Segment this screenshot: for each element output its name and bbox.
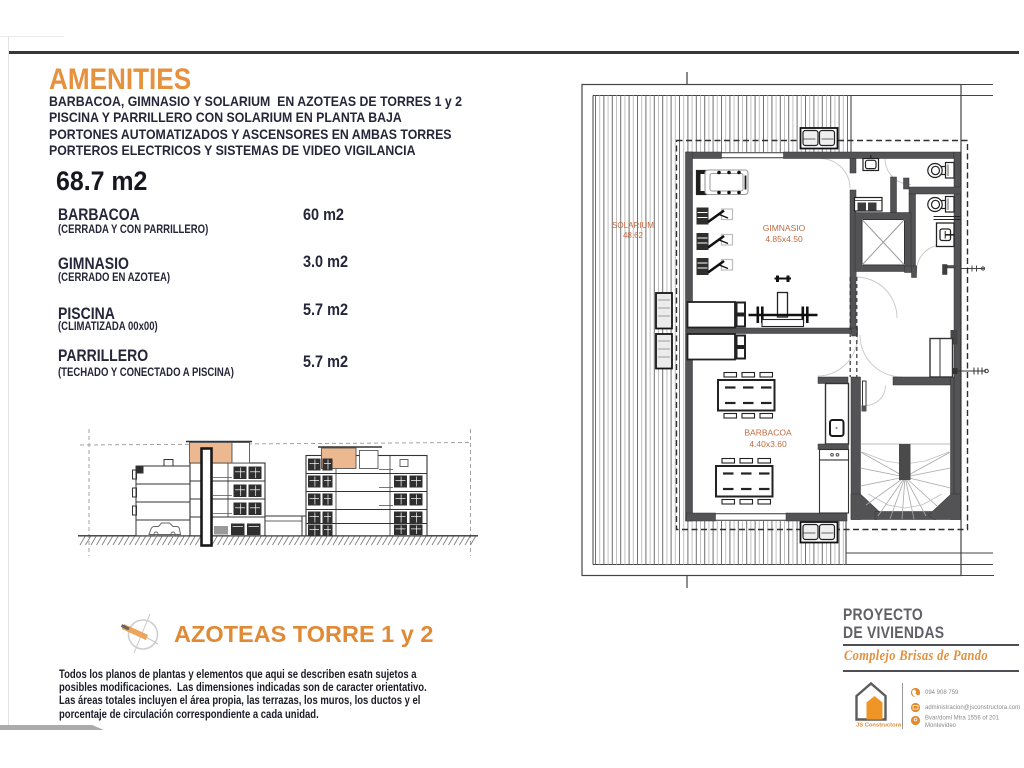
svg-text:48.62: 48.62 [623,231,644,240]
svg-text:4.85x4.50: 4.85x4.50 [765,234,803,244]
svg-text:Bvar/doml Mtra 1556 of 201: Bvar/doml Mtra 1556 of 201 [925,716,1000,722]
svg-text:Montevideo: Montevideo [925,723,957,729]
svg-text:JS Constructora: JS Constructora [856,723,902,729]
svg-text:BARBACOA: BARBACOA [744,428,792,438]
svg-text:094 908 759: 094 908 759 [925,690,959,696]
svg-text:SOLARIUM: SOLARIUM [612,221,654,230]
svg-text:4.40x3.60: 4.40x3.60 [749,439,787,449]
svg-text:administracion@jsconstructora.: administracion@jsconstructora.com [925,705,1020,711]
svg-text:GIMNASIO: GIMNASIO [763,223,806,233]
